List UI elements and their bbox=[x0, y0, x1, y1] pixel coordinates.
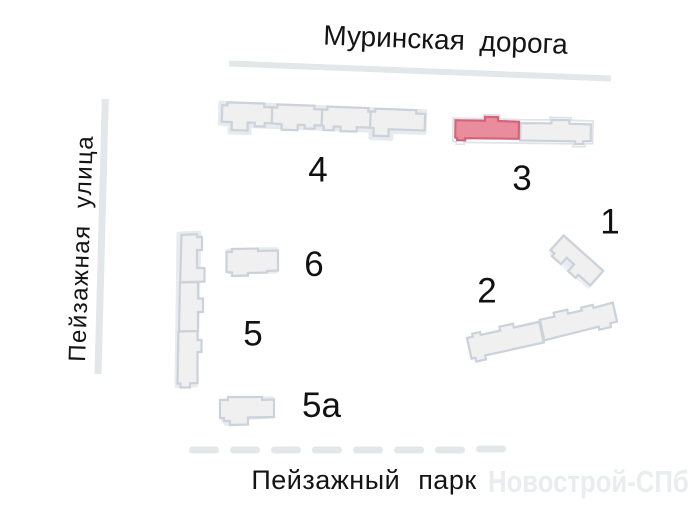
svg-text:6: 6 bbox=[304, 245, 323, 284]
svg-text:4: 4 bbox=[308, 151, 327, 190]
svg-text:2: 2 bbox=[477, 272, 496, 311]
svg-text:5а: 5а bbox=[302, 386, 341, 425]
svg-text:1: 1 bbox=[600, 203, 619, 242]
svg-text:3: 3 bbox=[512, 159, 531, 198]
svg-text:5: 5 bbox=[243, 315, 262, 354]
svg-text:Пейзажный парк: Пейзажный парк bbox=[251, 465, 476, 495]
svg-text:Новострой-СПб: Новострой-СПб bbox=[488, 465, 689, 500]
